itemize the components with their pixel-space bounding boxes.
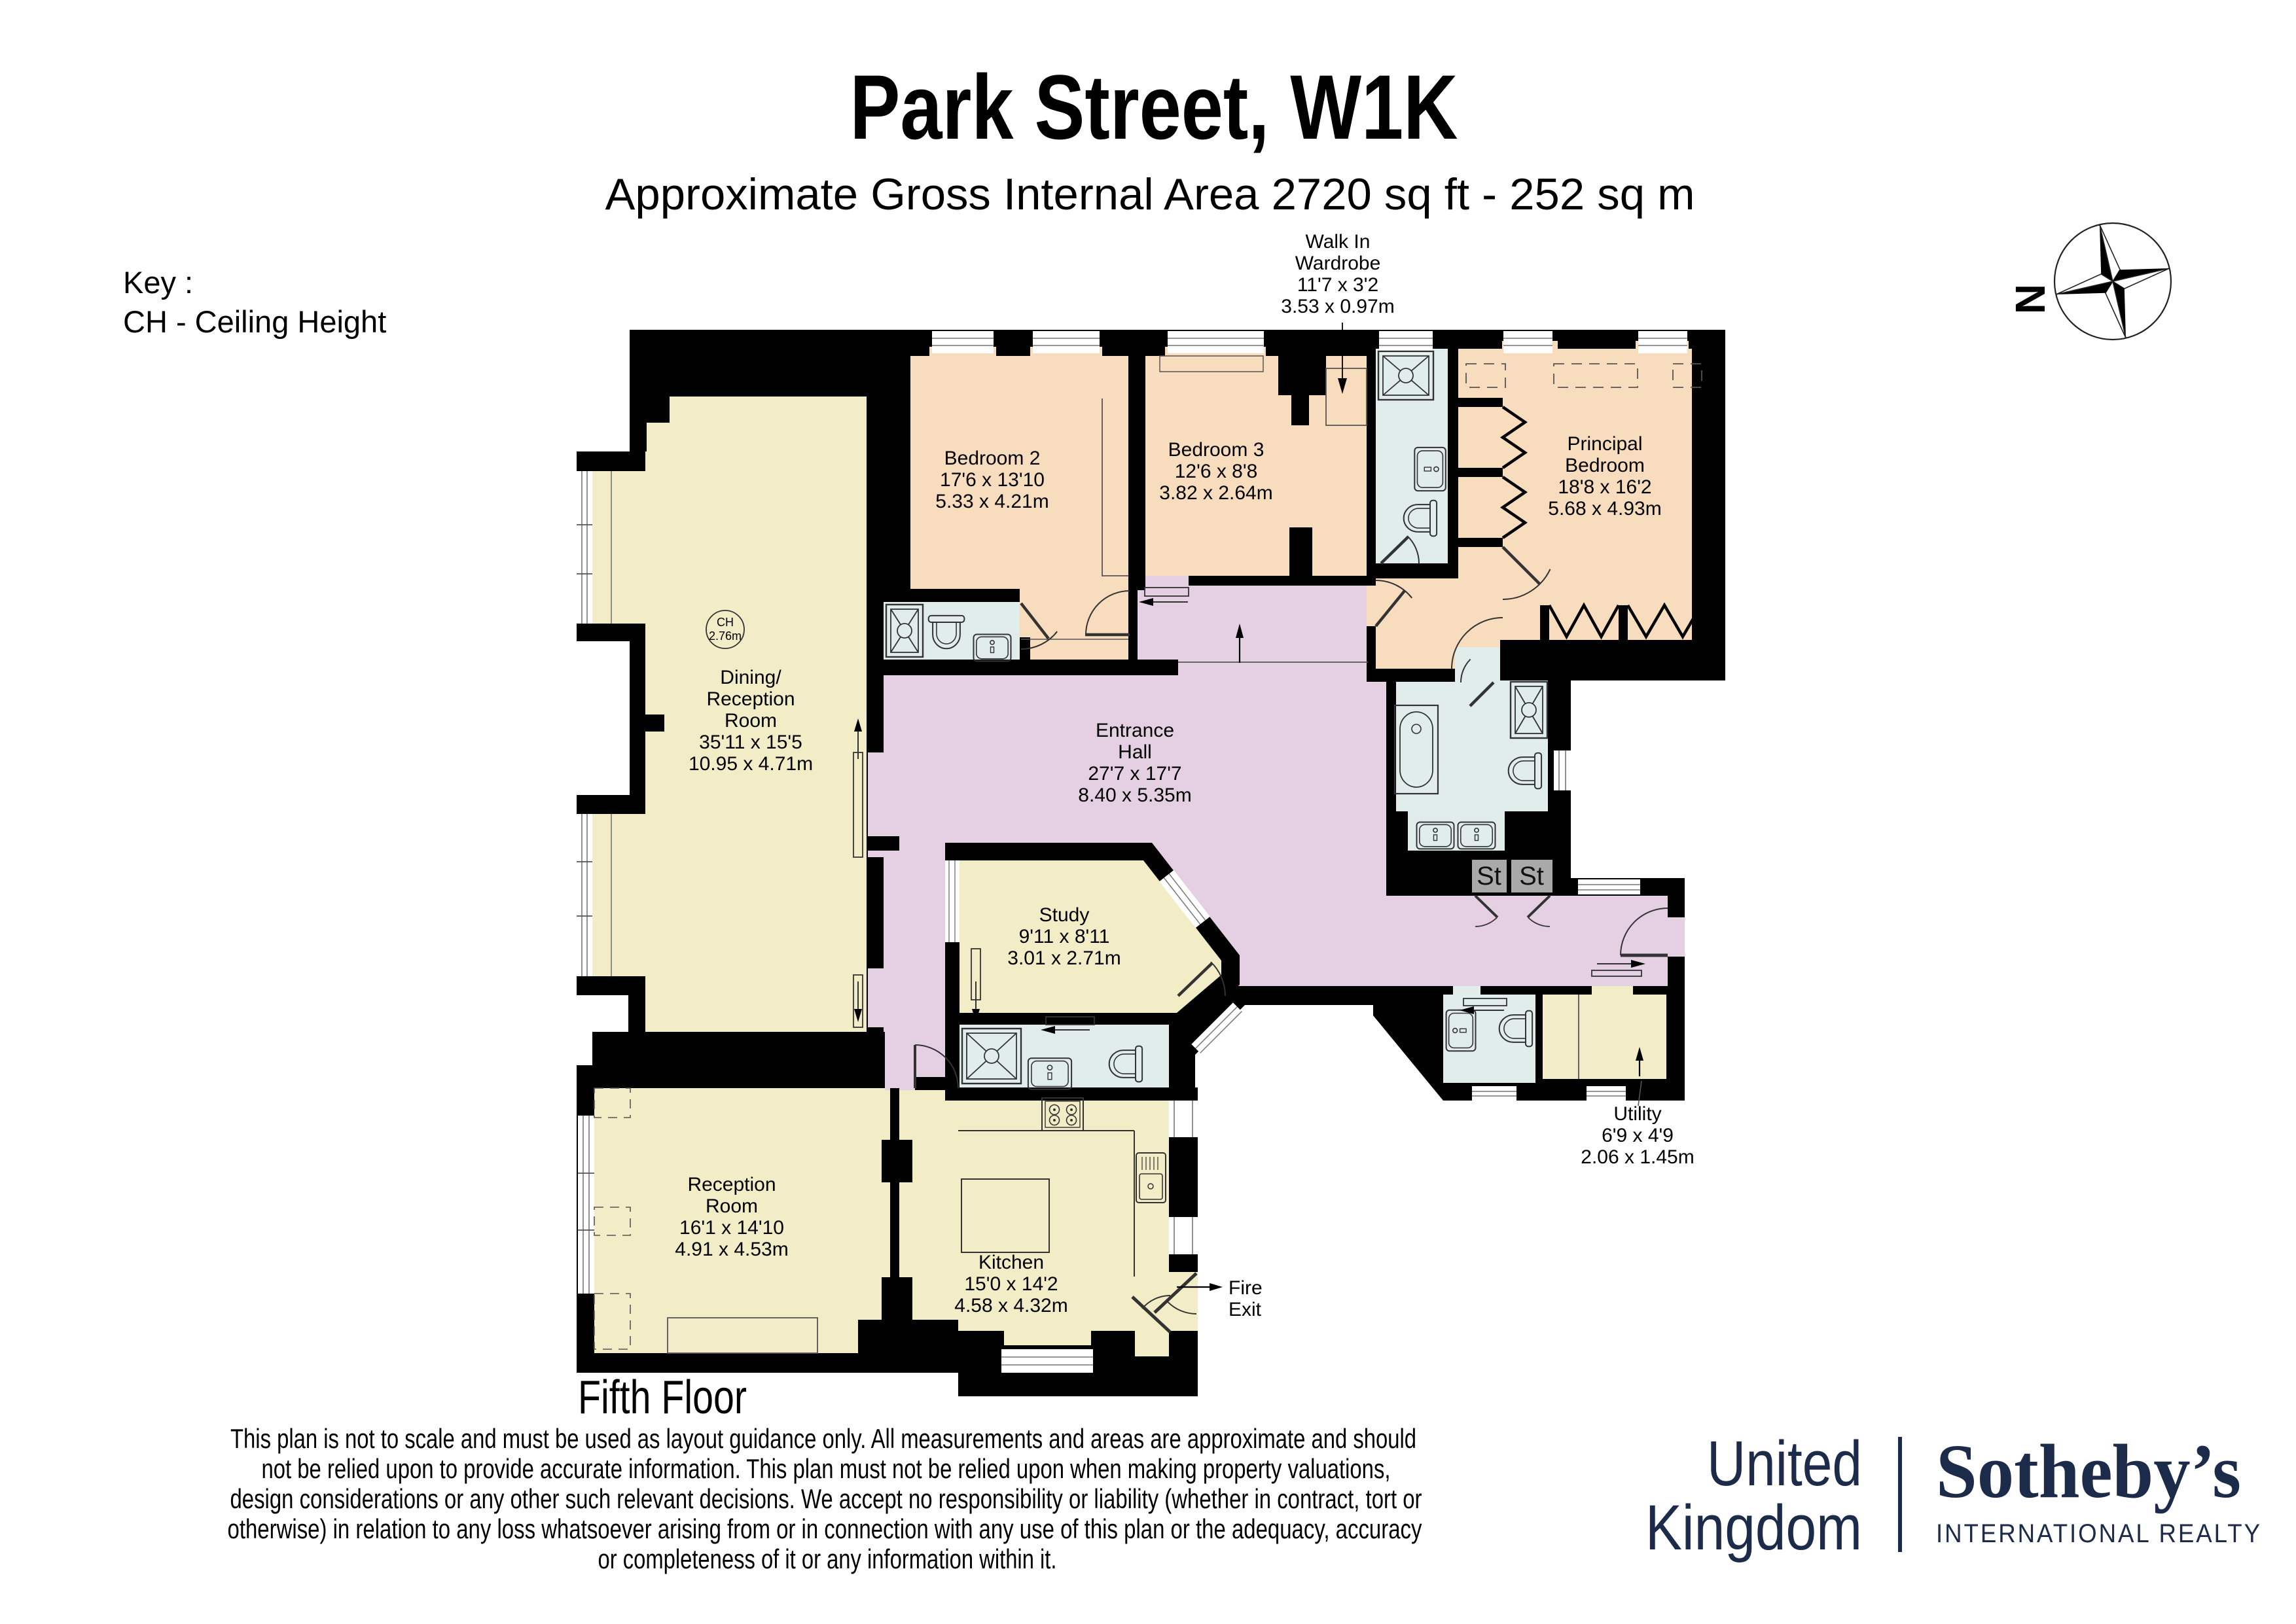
svg-text:16'1 x 14'10: 16'1 x 14'10 [679,1217,784,1239]
svg-text:United: United [1707,1428,1862,1499]
svg-text:Dining/: Dining/ [720,667,781,688]
svg-text:Bedroom 3: Bedroom 3 [1168,439,1265,461]
svg-text:15'0 x 14'2: 15'0 x 14'2 [964,1273,1058,1295]
svg-text:Kingdom: Kingdom [1645,1492,1862,1563]
svg-text:17'6 x 13'10: 17'6 x 13'10 [940,469,1045,491]
svg-text:Principal: Principal [1567,433,1642,455]
svg-text:3.01 x 2.71m: 3.01 x 2.71m [1007,947,1121,969]
svg-text:Reception: Reception [687,1174,776,1195]
svg-text:2.76m: 2.76m [709,629,742,643]
svg-text:4.91 x 4.53m: 4.91 x 4.53m [675,1239,788,1260]
svg-text:9'11 x 8'11: 9'11 x 8'11 [1019,926,1110,947]
svg-text:10.95 x 4.71m: 10.95 x 4.71m [689,753,813,775]
svg-text:Wardrobe: Wardrobe [1295,253,1381,274]
svg-text:Hall: Hall [1118,741,1152,763]
svg-text:otherwise) in relation to any: otherwise) in relation to any loss whats… [228,1513,1422,1544]
svg-text:3.82 x 2.64m: 3.82 x 2.64m [1159,482,1272,504]
svg-text:Bedroom 2: Bedroom 2 [944,448,1041,469]
svg-text:6'9 x 4'9: 6'9 x 4'9 [1602,1125,1674,1146]
svg-text:Entrance: Entrance [1096,720,1174,741]
svg-text:Study: Study [1039,904,1090,926]
svg-text:Room: Room [706,1195,758,1217]
svg-text:8.40 x 5.35m: 8.40 x 5.35m [1078,785,1191,806]
svg-text:12'6 x 8'8: 12'6 x 8'8 [1175,461,1258,482]
svg-text:Room: Room [725,710,777,732]
svg-text:Sotheby’s: Sotheby’s [1936,1428,2241,1514]
svg-text:Walk In: Walk In [1306,231,1371,253]
svg-text:Fifth Floor: Fifth Floor [578,1371,747,1424]
svg-text:INTERNATIONAL REALTY: INTERNATIONAL REALTY [1936,1519,2262,1548]
svg-text:Fire: Fire [1229,1277,1263,1299]
svg-text:Approximate Gross Internal Are: Approximate Gross Internal Area 2720 sq … [605,169,1695,219]
svg-text:Utility: Utility [1613,1103,1661,1125]
svg-text:Bedroom: Bedroom [1565,455,1645,476]
svg-text:design considerations or any o: design considerations or any other such … [230,1483,1422,1514]
svg-text:4.58 x 4.32m: 4.58 x 4.32m [954,1295,1067,1316]
svg-text:18'8 x 16'2: 18'8 x 16'2 [1558,476,1651,498]
svg-text:Exit: Exit [1229,1299,1262,1320]
svg-text:N: N [2007,284,2054,314]
svg-text:St: St [1519,862,1544,891]
svg-text:27'7 x 17'7: 27'7 x 17'7 [1088,763,1181,785]
svg-text:Reception: Reception [706,688,795,710]
svg-text:CH: CH [717,616,734,629]
svg-text:5.68 x 4.93m: 5.68 x 4.93m [1548,498,1661,520]
svg-text:This plan is not to scale and: This plan is not to scale and must be us… [230,1423,1416,1454]
svg-text:35'11 x 15'5: 35'11 x 15'5 [699,732,802,753]
svg-text:2.06 x 1.45m: 2.06 x 1.45m [1581,1146,1694,1168]
svg-text:5.33 x 4.21m: 5.33 x 4.21m [935,491,1049,512]
svg-text:St: St [1477,862,1501,891]
svg-text:Park Street, W1K: Park Street, W1K [850,56,1458,158]
svg-text:3.53 x 0.97m: 3.53 x 0.97m [1281,296,1394,317]
svg-text:Kitchen: Kitchen [978,1252,1044,1273]
svg-text:or completeness of it or any i: or completeness of it or any information… [598,1544,1057,1574]
svg-text:not be relied upon to provide: not be relied upon to provide accurate i… [262,1453,1391,1484]
svg-text:CH - Ceiling Height: CH - Ceiling Height [123,304,386,339]
svg-text:Key :: Key : [123,265,193,300]
svg-text:11'7 x 3'2: 11'7 x 3'2 [1297,274,1378,296]
